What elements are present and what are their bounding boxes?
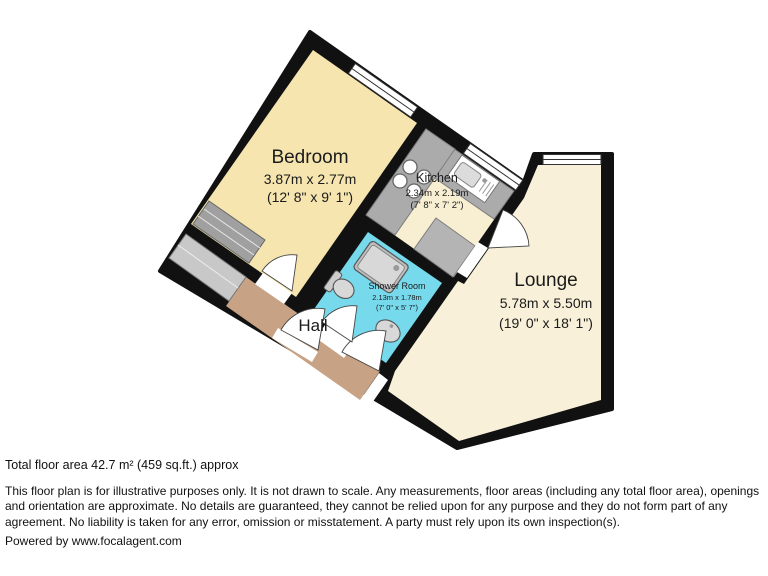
hall-label: Hall: [298, 316, 327, 335]
bedroom-label: Bedroom: [271, 147, 348, 168]
shower-room-dim-metric: 2.13m x 1.78m: [372, 293, 422, 302]
lounge-dim-imperial: (19' 0" x 18' 1"): [499, 315, 593, 331]
powered-by-text: Powered by www.focalagent.com: [5, 534, 765, 548]
shower-room-label: Shower Room: [368, 281, 425, 291]
kitchen-dim-metric: 2.34m x 2.19m: [406, 188, 469, 199]
kitchen-dim-imperial: (7' 8" x 7' 2"): [410, 200, 463, 211]
total-floor-area-text: Total floor area 42.7 m² (459 sq.ft.) ap…: [5, 458, 765, 472]
lounge-label: Lounge: [514, 270, 577, 291]
bedroom-dim-imperial: (12' 8" x 9' 1"): [267, 189, 353, 205]
bedroom-dim-metric: 3.87m x 2.77m: [264, 171, 357, 187]
lounge-dim-metric: 5.78m x 5.50m: [500, 295, 593, 311]
lounge-window: [543, 155, 601, 165]
floor-plan-svg: Bedroom 3.87m x 2.77m (12' 8" x 9' 1") K…: [0, 0, 768, 455]
kitchen-label: Kitchen: [416, 171, 458, 185]
disclaimer-text: This floor plan is for illustrative purp…: [5, 484, 765, 530]
shower-room-dim-imperial: (7' 0" x 5' 7"): [376, 303, 418, 312]
floor-plan-page: Bedroom 3.87m x 2.77m (12' 8" x 9' 1") K…: [0, 0, 768, 576]
